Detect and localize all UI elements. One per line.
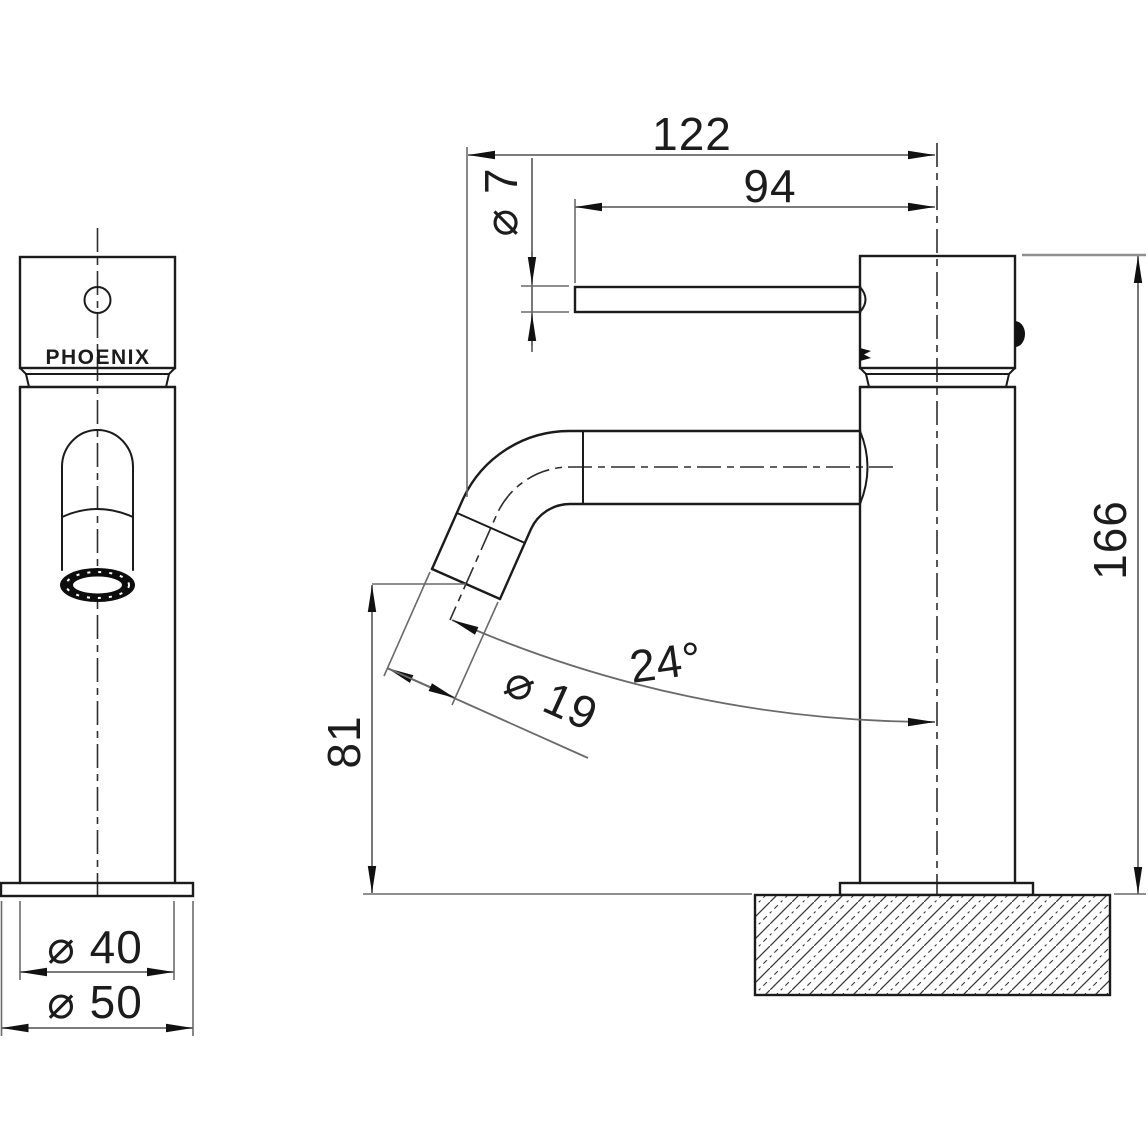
dim-122-text: 122 bbox=[652, 108, 732, 160]
dim-d19-text: ⌀ 19 bbox=[497, 654, 606, 741]
bench-section-hatch bbox=[755, 895, 1110, 995]
ext-d19-a bbox=[384, 572, 430, 676]
lever bbox=[575, 287, 866, 312]
dim-81-text: 81 bbox=[318, 715, 370, 768]
spout-inner-edge bbox=[500, 504, 860, 599]
dim-d50-text: ⌀ 50 bbox=[47, 976, 143, 1028]
side-view bbox=[432, 143, 1110, 995]
dim-d19-arrow-b bbox=[387, 668, 455, 698]
spout-outer-edge bbox=[432, 431, 860, 569]
block-left-mark bbox=[860, 348, 871, 361]
brand-logo-text: PHOENIX bbox=[45, 346, 150, 369]
faucet-dimension-drawing: PHOENIX bbox=[0, 0, 1148, 1148]
dim-166-text: 166 bbox=[1084, 500, 1136, 580]
dim-94-text: 94 bbox=[743, 160, 796, 212]
front-view: PHOENIX bbox=[1, 228, 193, 897]
spout bbox=[432, 431, 868, 599]
dim-d7-text: ⌀ 7 bbox=[475, 167, 527, 236]
spout-axis-centerline bbox=[450, 467, 893, 620]
dim-d40-text: ⌀ 40 bbox=[47, 921, 143, 973]
spout-aerator-joint bbox=[457, 513, 525, 543]
technical-drawing-page: PHOENIX bbox=[0, 0, 1148, 1148]
ext-d19-b bbox=[452, 602, 498, 705]
handle-pin-mark bbox=[1015, 321, 1025, 347]
aerator-inner bbox=[72, 576, 123, 595]
dim-24-text: 24° bbox=[626, 631, 705, 693]
